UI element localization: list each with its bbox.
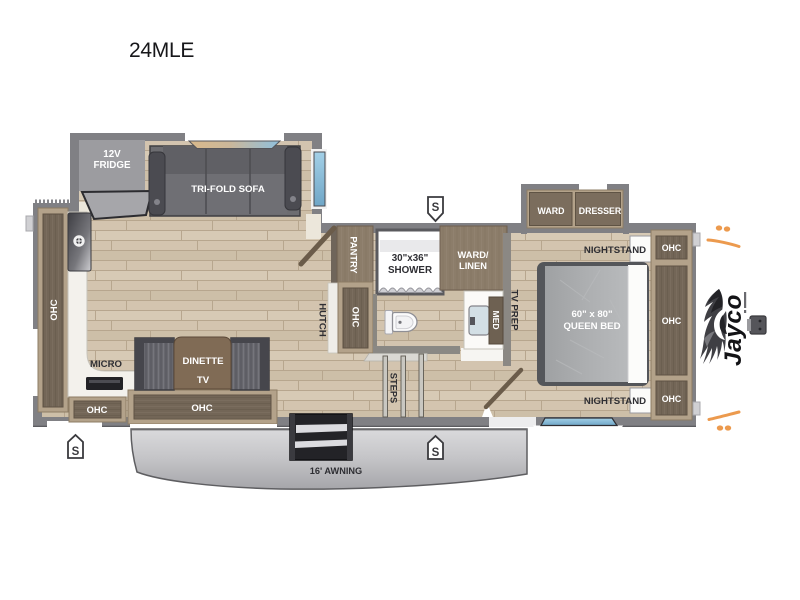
svg-text:QUEEN BED: QUEEN BED <box>563 321 620 332</box>
svg-text:LINEN: LINEN <box>459 261 487 271</box>
svg-text:HUTCH: HUTCH <box>317 303 328 337</box>
svg-text:OHC: OHC <box>351 307 361 328</box>
svg-text:NIGHTSTAND: NIGHTSTAND <box>584 396 646 407</box>
svg-text:16' AWNING: 16' AWNING <box>310 466 362 476</box>
svg-text:WARD/: WARD/ <box>458 250 489 260</box>
svg-text:30"x36": 30"x36" <box>392 253 429 264</box>
svg-text:S: S <box>72 446 80 458</box>
svg-text:OHC: OHC <box>662 316 682 326</box>
svg-text:OHC: OHC <box>87 405 108 415</box>
svg-text:DINETTE: DINETTE <box>182 356 224 367</box>
svg-text:S: S <box>432 447 440 459</box>
svg-text:24MLE: 24MLE <box>129 39 194 62</box>
svg-text:OHC: OHC <box>662 394 682 404</box>
svg-text:OHC: OHC <box>662 243 682 253</box>
svg-text:TV: TV <box>197 375 210 386</box>
svg-text:OHC: OHC <box>191 403 212 414</box>
svg-text:MED: MED <box>491 310 501 329</box>
svg-text:STEPS: STEPS <box>389 373 399 403</box>
svg-text:TV PREP: TV PREP <box>509 289 520 331</box>
svg-text:MICRO: MICRO <box>90 359 123 370</box>
svg-text:WARD: WARD <box>538 206 565 216</box>
svg-text:60" x 80": 60" x 80" <box>571 309 612 320</box>
svg-text:TRI-FOLD SOFA: TRI-FOLD SOFA <box>191 184 265 195</box>
svg-text:NIGHTSTAND: NIGHTSTAND <box>584 245 646 256</box>
svg-text:OHC: OHC <box>49 299 60 320</box>
svg-text:S: S <box>432 202 440 214</box>
svg-text:SHOWER: SHOWER <box>388 265 432 276</box>
svg-text:PANTRY: PANTRY <box>349 236 359 274</box>
svg-text:FRIDGE: FRIDGE <box>93 160 130 171</box>
svg-text:DRESSER: DRESSER <box>579 206 622 216</box>
svg-text:12V: 12V <box>103 149 121 160</box>
